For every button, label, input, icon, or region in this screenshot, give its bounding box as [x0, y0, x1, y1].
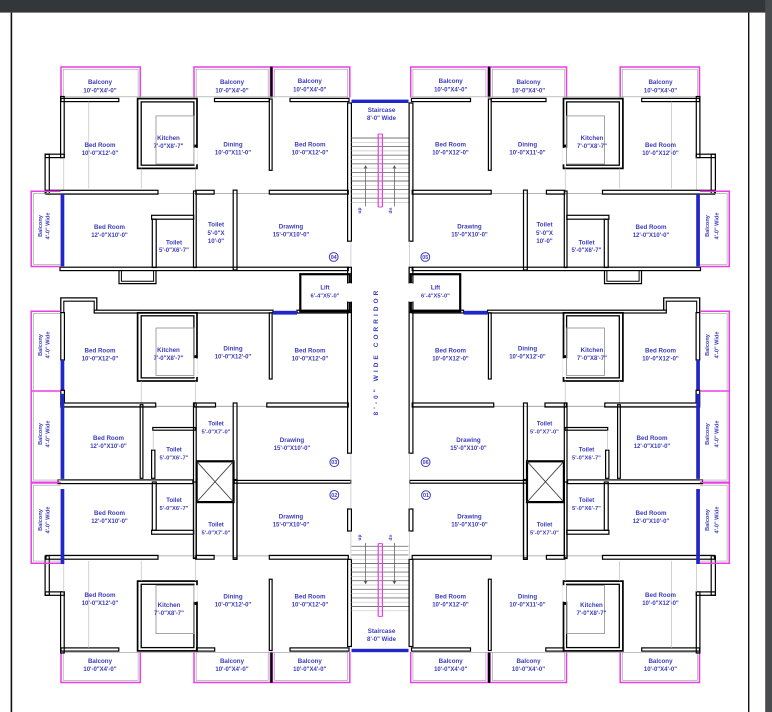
svg-text:5'-0"X6'-7": 5'-0"X6'-7" [160, 506, 189, 512]
svg-text:15'-0"X10'-0": 15'-0"X10'-0" [450, 446, 487, 452]
svg-text:Kitchen: Kitchen [158, 602, 181, 609]
svg-text:5'-0"X: 5'-0"X [208, 231, 225, 237]
svg-text:10'-0"X4'-0": 10'-0"X4'-0" [644, 667, 677, 673]
svg-text:Drawing: Drawing [456, 437, 481, 444]
svg-text:12'-0"X10'-0": 12'-0"X10'-0" [634, 444, 671, 450]
svg-text:Balcony: Balcony [220, 79, 245, 86]
svg-text:10'-0"X12'-0": 10'-0"X12'-0" [432, 357, 469, 363]
svg-text:Drawing: Drawing [279, 224, 304, 231]
svg-text:8'-0" Wide: 8'-0" Wide [367, 637, 397, 643]
svg-text:Balcony: Balcony [38, 333, 44, 356]
svg-text:Bed Room: Bed Room [637, 435, 668, 442]
svg-text:05: 05 [422, 255, 428, 261]
svg-text:7'-0"X8'-7": 7'-0"X8'-7" [577, 144, 607, 150]
svg-text:Bed Room: Bed Room [94, 510, 125, 517]
svg-text:5'-0"X6'-7": 5'-0"X6'-7" [159, 248, 189, 254]
svg-text:10'-0"X12'-0": 10'-0"X12'-0" [215, 355, 252, 361]
svg-text:Bed Room: Bed Room [295, 141, 326, 148]
svg-text:Toilet: Toilet [166, 498, 182, 504]
svg-text:15'-0"X10'-0": 15'-0"X10'-0" [451, 233, 488, 239]
svg-text:8'-0" WIDE CORRIDOR: 8'-0" WIDE CORRIDOR [373, 288, 380, 416]
svg-text:15'-0"X10'-0": 15'-0"X10'-0" [273, 523, 310, 529]
svg-text:12'-0"X10'-0": 12'-0"X10'-0" [90, 444, 127, 450]
svg-text:Balcony: Balcony [38, 422, 44, 445]
svg-text:Drawing: Drawing [457, 224, 482, 231]
svg-text:10'-0"X4'-0": 10'-0"X4'-0" [215, 88, 248, 94]
svg-text:Bed Room: Bed Room [295, 594, 326, 601]
svg-text:5'-0"X6'-7": 5'-0"X6'-7" [572, 506, 601, 512]
svg-text:10'-0"X12'-0": 10'-0"X12'-0" [432, 151, 469, 157]
svg-text:10'-0"X4'-0": 10'-0"X4'-0" [293, 667, 326, 673]
svg-text:Bed Room: Bed Room [645, 592, 676, 599]
svg-text:5'-0"X: 5'-0"X [536, 231, 553, 237]
svg-text:10'-0"X4'-0": 10'-0"X4'-0" [512, 667, 545, 673]
svg-text:Bed Room: Bed Room [85, 142, 116, 149]
svg-text:10'-0"X12'-0": 10'-0"X12'-0" [82, 151, 119, 157]
svg-text:Drawing: Drawing [279, 513, 304, 520]
svg-text:Toilet: Toilet [578, 239, 594, 246]
svg-text:Bed Room: Bed Room [645, 348, 676, 355]
svg-text:Bed Room: Bed Room [645, 142, 676, 149]
svg-text:15'-0"X10'-0": 15'-0"X10'-0" [274, 446, 311, 452]
svg-text:10'-0"X12'-0": 10'-0"X12'-0" [292, 357, 329, 363]
svg-text:Dining: Dining [518, 594, 537, 601]
svg-text:10'-0"X4'-0": 10'-0"X4'-0" [215, 667, 248, 673]
svg-text:7'-0"X8'-7": 7'-0"X8'-7" [577, 611, 607, 617]
svg-text:4'-0" Wide: 4'-0" Wide [714, 507, 720, 534]
svg-text:Dining: Dining [223, 141, 242, 148]
svg-text:01: 01 [423, 493, 429, 499]
svg-text:Bed Room: Bed Room [435, 348, 466, 355]
svg-text:10'-0"X12'-0": 10'-0"X12'-0" [509, 355, 546, 361]
svg-text:5'-0"X7'-0": 5'-0"X7'-0" [530, 430, 559, 436]
svg-text:Balcony: Balcony [705, 333, 711, 356]
svg-text:Dining: Dining [223, 594, 242, 601]
svg-text:10'-0"X12'-0": 10'-0"X12'-0" [642, 601, 679, 607]
svg-text:Bed Room: Bed Room [636, 224, 667, 231]
svg-text:Toilet: Toilet [537, 522, 553, 528]
svg-text:4'-0" Wide: 4'-0" Wide [714, 213, 720, 240]
svg-text:Bed Room: Bed Room [435, 141, 466, 148]
svg-text:10'-0"X11'-0": 10'-0"X11'-0" [509, 603, 545, 609]
svg-text:02: 02 [331, 493, 337, 499]
svg-text:Kitchen: Kitchen [581, 135, 604, 142]
svg-text:up: up [358, 208, 363, 214]
svg-text:5'-0"X7'-0": 5'-0"X7'-0" [202, 430, 231, 436]
svg-text:12'-0"X10'-0": 12'-0"X10'-0" [633, 519, 670, 525]
svg-text:Staircase: Staircase [368, 107, 396, 114]
svg-text:Kitchen: Kitchen [580, 602, 603, 609]
svg-text:04: 04 [331, 255, 337, 261]
svg-text:10'-0": 10'-0" [536, 239, 552, 245]
svg-text:Drawing: Drawing [280, 437, 305, 444]
svg-text:10'-0"X12'-0": 10'-0"X12'-0" [642, 357, 679, 363]
svg-text:4'-0" Wide: 4'-0" Wide [45, 332, 51, 359]
svg-text:Balcony: Balcony [298, 78, 323, 85]
svg-text:Dining: Dining [223, 345, 242, 352]
svg-text:Bed Room: Bed Room [85, 348, 116, 355]
svg-text:Bed Room: Bed Room [93, 435, 124, 442]
svg-text:Toilet: Toilet [536, 222, 552, 229]
svg-text:6'-4"X5'-0": 6'-4"X5'-0" [311, 294, 340, 300]
svg-text:10'-0"X11'-0": 10'-0"X11'-0" [215, 151, 251, 157]
svg-text:Balcony: Balcony [648, 658, 673, 665]
svg-text:Balcony: Balcony [516, 79, 541, 86]
svg-text:Lift: Lift [320, 286, 329, 292]
svg-text:Bed Room: Bed Room [435, 594, 466, 601]
svg-text:Balcony: Balcony [516, 658, 541, 665]
svg-text:Dining: Dining [518, 141, 537, 148]
svg-text:10'-0"X4'-0": 10'-0"X4'-0" [293, 87, 326, 93]
svg-text:Toilet: Toilet [166, 239, 182, 246]
svg-text:Bed Room: Bed Room [295, 348, 326, 355]
svg-text:5'-0"X6'-7": 5'-0"X6'-7" [572, 456, 601, 462]
svg-text:8'-0" Wide: 8'-0" Wide [367, 116, 397, 122]
svg-text:10'-0"X4'-0": 10'-0"X4'-0" [644, 88, 677, 94]
svg-text:Balcony: Balcony [439, 658, 464, 665]
svg-text:4'-0" Wide: 4'-0" Wide [714, 421, 720, 448]
svg-text:Balcony: Balcony [705, 508, 711, 531]
svg-text:Balcony: Balcony [298, 658, 323, 665]
svg-text:Toilet: Toilet [579, 498, 595, 504]
svg-text:6'-4"X5'-0": 6'-4"X5'-0" [421, 294, 450, 300]
svg-text:Balcony: Balcony [88, 79, 113, 86]
svg-text:7'-0"X8'-7": 7'-0"X8'-7" [154, 356, 184, 362]
svg-text:10'-0"X4'-0": 10'-0"X4'-0" [434, 667, 467, 673]
svg-text:15'-0"X10'-0": 15'-0"X10'-0" [273, 233, 310, 239]
svg-text:4'-0" Wide: 4'-0" Wide [45, 507, 51, 534]
svg-text:dn: dn [388, 535, 394, 541]
svg-text:Balcony: Balcony [88, 658, 113, 665]
svg-text:Kitchen: Kitchen [157, 347, 180, 354]
svg-text:Lift: Lift [431, 286, 440, 292]
svg-text:Balcony: Balcony [705, 214, 711, 237]
svg-text:Bed Room: Bed Room [85, 592, 116, 599]
svg-text:5'-0"X6'-7": 5'-0"X6'-7" [572, 248, 602, 254]
svg-text:10'-0"X4'-0": 10'-0"X4'-0" [83, 667, 116, 673]
svg-text:12'-0"X10'-0": 12'-0"X10'-0" [633, 233, 670, 239]
svg-text:5'-0"X7'-0": 5'-0"X7'-0" [530, 531, 559, 537]
svg-text:Kitchen: Kitchen [581, 347, 604, 354]
svg-text:5'-0"X7'-0": 5'-0"X7'-0" [202, 531, 231, 537]
svg-text:Dining: Dining [518, 345, 537, 352]
svg-text:10'-0"X4'-0": 10'-0"X4'-0" [83, 88, 116, 94]
svg-text:Toilet: Toilet [166, 447, 182, 453]
svg-text:12'-0"X10'-0": 12'-0"X10'-0" [91, 233, 128, 239]
svg-text:7'-0"X8'-7": 7'-0"X8'-7" [577, 356, 607, 362]
svg-text:Bed Room: Bed Room [94, 224, 125, 231]
svg-text:4'-0" Wide: 4'-0" Wide [714, 332, 720, 359]
svg-text:Balcony: Balcony [38, 214, 44, 237]
svg-text:Balcony: Balcony [648, 79, 673, 86]
svg-text:10'-0"X11'-0": 10'-0"X11'-0" [509, 151, 545, 157]
svg-text:7'-0"X8'-7": 7'-0"X8'-7" [154, 611, 184, 617]
svg-text:Toilet: Toilet [579, 447, 595, 453]
svg-text:4'-0" Wide: 4'-0" Wide [45, 213, 51, 240]
svg-text:15'-0"X10'-0": 15'-0"X10'-0" [451, 523, 488, 529]
svg-text:10'-0"X12'-0": 10'-0"X12'-0" [82, 357, 119, 363]
svg-text:Balcony: Balcony [220, 658, 245, 665]
svg-text:Balcony: Balcony [439, 78, 464, 85]
svg-text:10'-0"X12'-0": 10'-0"X12'-0" [292, 603, 329, 609]
svg-text:10'-0"X4'-0": 10'-0"X4'-0" [434, 87, 467, 93]
svg-text:5'-0"X6'-7": 5'-0"X6'-7" [160, 456, 189, 462]
svg-text:Bed Room: Bed Room [636, 510, 667, 517]
svg-text:Toilet: Toilet [208, 222, 224, 229]
svg-text:Kitchen: Kitchen [157, 135, 180, 142]
svg-text:06: 06 [423, 460, 429, 466]
svg-text:Toilet: Toilet [208, 522, 224, 528]
svg-text:10'-0"X12'-0": 10'-0"X12'-0" [432, 603, 469, 609]
svg-text:Toilet: Toilet [537, 421, 553, 427]
svg-text:10'-0"X12'-0": 10'-0"X12'-0" [292, 151, 329, 157]
svg-text:Toilet: Toilet [208, 421, 224, 427]
svg-text:10'-0"X12'-0": 10'-0"X12'-0" [82, 601, 119, 607]
svg-text:up: up [358, 535, 363, 541]
svg-text:03: 03 [331, 460, 337, 466]
svg-text:7'-0"X8'-7": 7'-0"X8'-7" [154, 144, 184, 150]
svg-text:Balcony: Balcony [705, 422, 711, 445]
svg-text:4'-0" Wide: 4'-0" Wide [45, 421, 51, 448]
svg-text:Drawing: Drawing [457, 513, 482, 520]
svg-text:10'-0"X12'-0": 10'-0"X12'-0" [642, 151, 679, 157]
svg-text:Balcony: Balcony [38, 508, 44, 531]
svg-text:Staircase: Staircase [368, 628, 396, 635]
svg-text:10'-0"X12'-0": 10'-0"X12'-0" [215, 603, 252, 609]
svg-text:dn: dn [388, 208, 394, 214]
svg-text:10'-0"X4'-0": 10'-0"X4'-0" [512, 88, 545, 94]
svg-text:12'-0"X10'-0": 12'-0"X10'-0" [91, 519, 128, 525]
svg-text:10'-0": 10'-0" [208, 239, 224, 245]
